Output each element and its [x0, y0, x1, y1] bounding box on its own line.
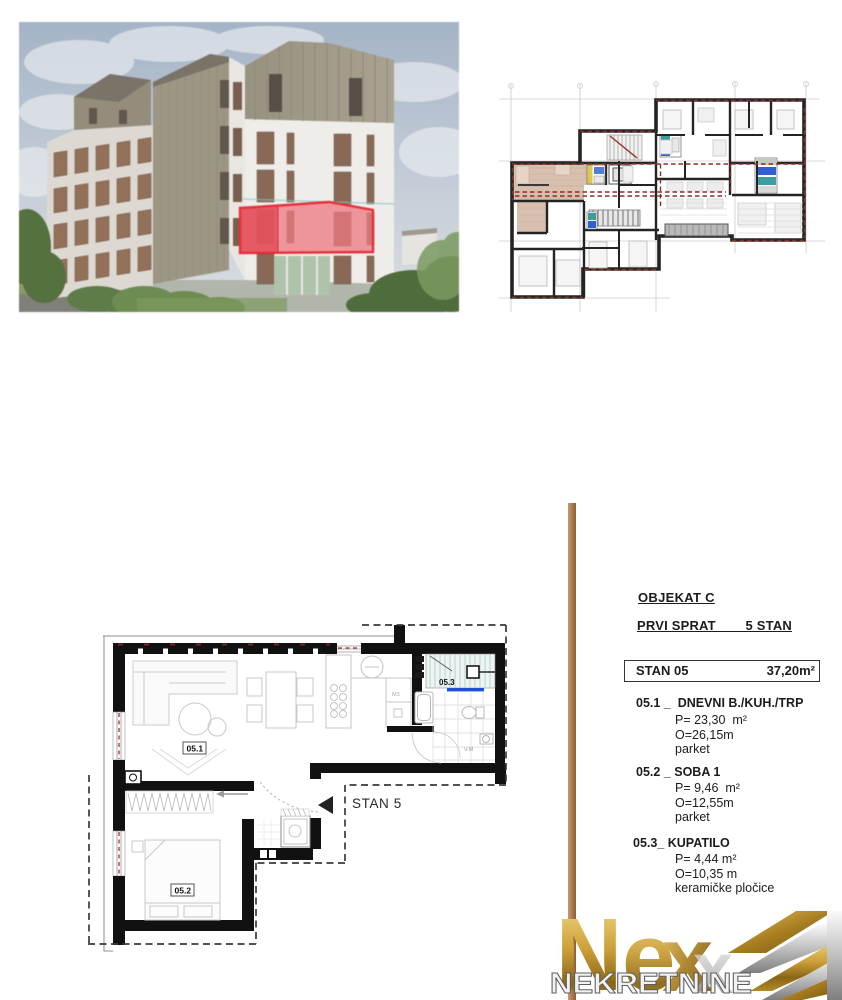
svg-text:05.3: 05.3 [439, 678, 455, 687]
svg-text:V.M: V.M [464, 747, 474, 753]
svg-text:05.2: 05.2 [175, 886, 192, 896]
svg-text:NEKRETNINE: NEKRETNINE [550, 968, 752, 1000]
svg-text:05.1: 05.1 [187, 744, 204, 754]
svg-text:STAN 5: STAN 5 [352, 796, 402, 811]
svg-text:M3: M3 [392, 692, 400, 698]
